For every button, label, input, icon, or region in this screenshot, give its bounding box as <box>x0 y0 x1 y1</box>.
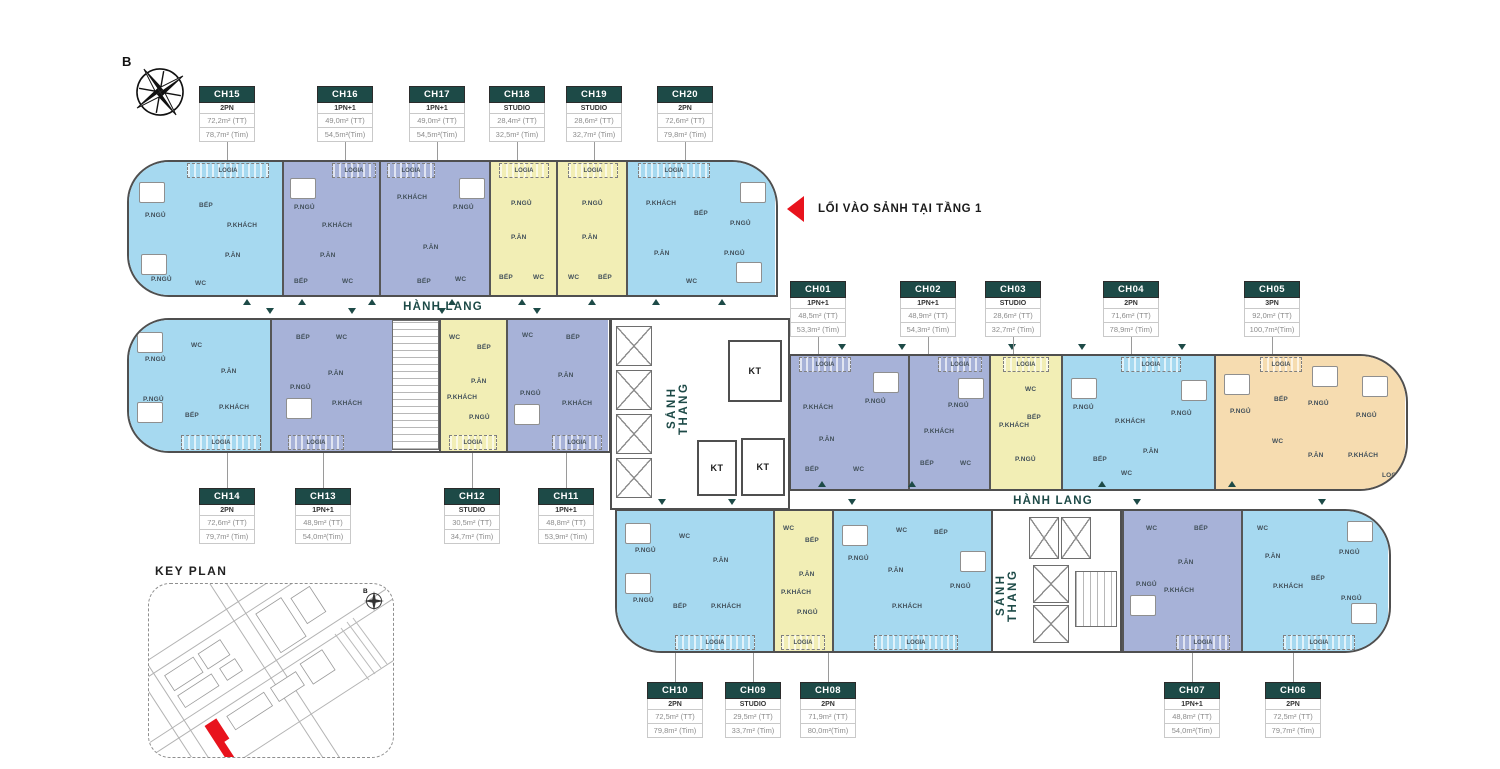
unit-id-badge: CH16 <box>317 86 373 103</box>
unit-area-tt: 72,6m² (TT) <box>657 114 713 128</box>
unit-area-tim: 54,3m² (Tim) <box>900 323 956 337</box>
bed-furniture <box>842 525 868 546</box>
room-label: P.NGỦ <box>145 356 166 363</box>
bed-furniture <box>139 182 165 203</box>
unit-callout-ch04: CH04 2PN 71,6m² (TT) 78,9m² (Tim) <box>1103 281 1159 337</box>
room-label: WC <box>195 280 206 287</box>
logia-strip: LOGIA <box>1121 357 1181 372</box>
room-label: P.NGỦ <box>145 212 166 219</box>
unit-CH05: LOGIA P.NGỦ BẾP P.NGỦ P.NGỦ WC P.ĂN P.KH… <box>1214 356 1405 489</box>
unit-area-tim: 54,0m²(Tim) <box>1164 724 1220 738</box>
logia-strip: LOGIA <box>332 163 376 178</box>
room-label: P.ĂN <box>225 252 241 259</box>
technical-room: KT <box>697 440 737 496</box>
room-label: P.ĂN <box>558 372 574 379</box>
unit-area-tim: 32,7m² (Tim) <box>566 128 622 142</box>
unit-area-tim: 53,3m² (Tim) <box>790 323 846 337</box>
entrance-marker-icon <box>438 308 446 314</box>
unit-id-badge: CH17 <box>409 86 465 103</box>
entrance-marker-icon <box>1078 344 1086 350</box>
room-label: P.NGỦ <box>797 609 818 616</box>
room-label: P.NGỦ <box>1073 404 1094 411</box>
room-label: WC <box>1025 386 1036 393</box>
unit-CH17: LOGIA P.NGỦ P.KHÁCH P.ĂN BẾP WC <box>379 162 489 295</box>
unit-area-tt: 48,8m² (TT) <box>538 516 594 530</box>
unit-id-badge: CH15 <box>199 86 255 103</box>
room-label: P.ĂN <box>471 378 487 385</box>
unit-CH18: LOGIA P.NGỦ P.ĂN BẾP WC <box>489 162 556 295</box>
room-label: P.NGỦ <box>453 204 474 211</box>
room-label: P.ĂN <box>1178 559 1194 566</box>
unit-type: 2PN <box>1265 699 1321 710</box>
room-label: BẾP <box>1027 414 1041 421</box>
unit-area-tt: 49,0m² (TT) <box>409 114 465 128</box>
unit-area-tim: 79,8m² (Tim) <box>647 724 703 738</box>
unit-id-badge: CH10 <box>647 682 703 699</box>
room-label: P.ĂN <box>582 234 598 241</box>
unit-id-badge: CH11 <box>538 488 594 505</box>
room-label: P.ĂN <box>888 567 904 574</box>
room-label: WC <box>1121 470 1132 477</box>
unit-id-badge: CH18 <box>489 86 545 103</box>
room-label: P.ĂN <box>221 368 237 375</box>
entrance-marker-icon <box>908 481 916 487</box>
unit-area-tt: 72,5m² (TT) <box>1265 710 1321 724</box>
logia-strip: LOGIA <box>387 163 435 178</box>
unit-callout-ch09: CH09 STUDIO 29,5m² (TT) 33,7m² (Tim) <box>725 682 781 738</box>
unit-type: 2PN <box>800 699 856 710</box>
room-label: P.NGỦ <box>290 384 311 391</box>
south-core: SẢNH THANG <box>991 511 1122 651</box>
room-label: BẾP <box>694 210 708 217</box>
room-label: BẾP <box>1274 396 1288 403</box>
room-label: P.KHÁCH <box>892 603 922 610</box>
unit-type: 2PN <box>199 103 255 114</box>
room-label: BẾP <box>920 460 934 467</box>
unit-callout-ch10: CH10 2PN 72,5m² (TT) 79,8m² (Tim) <box>647 682 703 738</box>
entrance-marker-icon <box>1318 499 1326 505</box>
bed-furniture <box>958 378 984 399</box>
unit-type: STUDIO <box>444 505 500 516</box>
entrance-marker-icon <box>266 308 274 314</box>
leader-line <box>753 653 754 682</box>
entrance-marker-icon <box>898 344 906 350</box>
bed-furniture <box>1071 378 1097 399</box>
unit-area-tim: 54,0m²(Tim) <box>295 530 351 544</box>
room-label: P.NGỦ <box>294 204 315 211</box>
unit-callout-ch01: CH01 1PN+1 48,5m² (TT) 53,3m² (Tim) <box>790 281 846 337</box>
entrance-marker-icon <box>448 299 456 305</box>
svg-text:B: B <box>122 54 131 69</box>
unit-type: 1PN+1 <box>295 505 351 516</box>
room-label: WC <box>1257 525 1268 532</box>
unit-type: 1PN+1 <box>317 103 373 114</box>
unit-area-tt: 72,2m² (TT) <box>199 114 255 128</box>
room-label: P.NGỦ <box>865 398 886 405</box>
room-label: BẾP <box>1194 525 1208 532</box>
unit-type: STUDIO <box>566 103 622 114</box>
entrance-marker-icon <box>1098 481 1106 487</box>
unit-area-tt: 28,4m² (TT) <box>489 114 545 128</box>
room-label: BẾP <box>1093 456 1107 463</box>
room-label: P.KHÁCH <box>332 400 362 407</box>
room-label: WC <box>1146 525 1157 532</box>
bed-furniture <box>141 254 167 275</box>
bed-furniture <box>1347 521 1373 542</box>
unit-CH07: LOGIA WC BẾP P.ĂN P.KHÁCH P.NGỦ <box>1122 511 1241 651</box>
svg-text:B: B <box>363 588 368 595</box>
unit-area-tim: 53,9m² (Tim) <box>538 530 594 544</box>
unit-area-tt: 72,6m² (TT) <box>199 516 255 530</box>
entrance-marker-icon <box>848 499 856 505</box>
room-label: P.NGỦ <box>1015 456 1036 463</box>
room-label: BẾP <box>673 603 687 610</box>
bed-furniture <box>625 573 651 594</box>
logia-strip: LOGIA <box>1283 635 1355 650</box>
room-label: P.ĂN <box>654 250 670 257</box>
entry-note: LỐI VÀO SẢNH TẠI TẦNG 1 <box>818 203 982 215</box>
unit-type: 1PN+1 <box>790 298 846 309</box>
bed-furniture <box>1224 374 1250 395</box>
room-label: WC <box>783 525 794 532</box>
room-label: P.NGỦ <box>633 597 654 604</box>
unit-area-tim: 34,7m² (Tim) <box>444 530 500 544</box>
logia-strip: LOGIA <box>187 163 269 178</box>
unit-area-tim: 79,7m² (Tim) <box>1265 724 1321 738</box>
room-label: P.KHÁCH <box>924 428 954 435</box>
bed-furniture <box>1181 380 1207 401</box>
room-label: P.ĂN <box>1143 448 1159 455</box>
unit-type: 1PN+1 <box>900 298 956 309</box>
entry-arrow-icon <box>787 196 804 222</box>
wing-east: LOGIA P.NGỦ P.KHÁCH P.ĂN BẾP WC LOGIA P.… <box>789 354 1408 491</box>
unit-area-tt: 48,5m² (TT) <box>790 309 846 323</box>
leader-line <box>472 453 473 488</box>
bed-furniture <box>286 398 312 419</box>
room-label: BẾP <box>805 466 819 473</box>
unit-type: 2PN <box>647 699 703 710</box>
unit-area-tim: 78,7m² (Tim) <box>199 128 255 142</box>
bed-furniture <box>1312 366 1338 387</box>
unit-area-tim: 32,5m² (Tim) <box>489 128 545 142</box>
unit-CH10: LOGIA P.NGỦ WC P.ĂN P.NGỦ BẾP P.KHÁCH <box>617 511 773 651</box>
room-label: BẾP <box>185 412 199 419</box>
unit-callout-ch13: CH13 1PN+1 48,9m² (TT) 54,0m²(Tim) <box>295 488 351 544</box>
room-label: P.NGỦ <box>848 555 869 562</box>
room-label: P.KHÁCH <box>397 194 427 201</box>
logia-strip: LOGIA <box>499 163 549 178</box>
unit-callout-ch05: CH05 3PN 92,0m² (TT) 100,7m²(Tim) <box>1244 281 1300 337</box>
bed-furniture <box>873 372 899 393</box>
unit-area-tim: 54,5m²(Tim) <box>317 128 373 142</box>
unit-CH02: LOGIA P.NGỦ P.KHÁCH BẾP WC <box>908 356 989 489</box>
room-label: BẾP <box>477 344 491 351</box>
room-label: BẾP <box>199 202 213 209</box>
room-label: P.NGỦ <box>1136 581 1157 588</box>
logia-strip: LOGIA <box>781 635 825 650</box>
room-label: WC <box>960 460 971 467</box>
entrance-marker-icon <box>533 308 541 314</box>
room-label: P.NGỦ <box>469 414 490 421</box>
unit-type: 2PN <box>1103 298 1159 309</box>
unit-id-badge: CH08 <box>800 682 856 699</box>
room-label: WC <box>568 274 579 281</box>
logia-strip: LOGIA <box>568 163 618 178</box>
room-label: WC <box>191 342 202 349</box>
room-label: P.KHÁCH <box>1164 587 1194 594</box>
room-label: WC <box>896 527 907 534</box>
unit-area-tt: 30,5m² (TT) <box>444 516 500 530</box>
bed-furniture <box>736 262 762 283</box>
room-label: WC <box>679 533 690 540</box>
room-label: WC <box>853 466 864 473</box>
unit-type: STUDIO <box>725 699 781 710</box>
unit-area-tt: 71,6m² (TT) <box>1103 309 1159 323</box>
unit-CH06: LOGIA WC P.NGỦ P.ĂN P.KHÁCH BẾP P.NGỦ <box>1241 511 1388 651</box>
room-label: P.ĂN <box>819 436 835 443</box>
leader-line <box>828 653 829 682</box>
room-label: BẾP <box>1311 575 1325 582</box>
bed-furniture <box>514 404 540 425</box>
logia-strip: LOGIA <box>1176 635 1230 650</box>
leader-line <box>675 653 676 682</box>
unit-type: 1PN+1 <box>538 505 594 516</box>
unit-callout-ch14: CH14 2PN 72,6m² (TT) 79,7m² (Tim) <box>199 488 255 544</box>
room-label: BẾP <box>934 529 948 536</box>
unit-callout-ch03: CH03 STUDIO 28,6m² (TT) 32,7m² (Tim) <box>985 281 1041 337</box>
bed-furniture <box>740 182 766 203</box>
unit-area-tim: 54,5m²(Tim) <box>409 128 465 142</box>
room-label: P.NGỦ <box>511 200 532 207</box>
logia-strip: LOGIA <box>1003 357 1049 372</box>
elevator-shaft <box>616 370 652 410</box>
unit-area-tt: 71,9m² (TT) <box>800 710 856 724</box>
room-label: P.KHÁCH <box>781 589 811 596</box>
stair-lobby-label: SẢNH THANG <box>995 545 1019 645</box>
elevator-shaft <box>616 458 652 498</box>
elevator-shaft <box>1033 565 1069 603</box>
unit-area-tim: 80,0m²(Tim) <box>800 724 856 738</box>
unit-area-tim: 79,8m² (Tim) <box>657 128 713 142</box>
bed-furniture <box>137 332 163 353</box>
unit-callout-ch08: CH08 2PN 71,9m² (TT) 80,0m²(Tim) <box>800 682 856 738</box>
room-label: P.NGỦ <box>1341 595 1362 602</box>
logia-strip: LOGIA <box>288 435 344 450</box>
bed-furniture <box>290 178 316 199</box>
unit-area-tim: 33,7m² (Tim) <box>725 724 781 738</box>
room-label: P.KHÁCH <box>1273 583 1303 590</box>
key-plan-site-icon: B <box>149 584 393 757</box>
elevator-shaft <box>1029 517 1059 559</box>
room-label: BẾP <box>296 334 310 341</box>
bed-furniture <box>137 402 163 423</box>
room-label: P.KHÁCH <box>322 222 352 229</box>
unit-area-tt: 28,6m² (TT) <box>566 114 622 128</box>
bed-furniture <box>459 178 485 199</box>
room-label: P.NGỦ <box>1171 410 1192 417</box>
bed-furniture <box>1351 603 1377 624</box>
room-label: P.KHÁCH <box>711 603 741 610</box>
unit-callout-ch11: CH11 1PN+1 48,8m² (TT) 53,9m² (Tim) <box>538 488 594 544</box>
room-label: BẾP <box>566 334 580 341</box>
room-label: P.NGỦ <box>1356 412 1377 419</box>
room-label: P.KHÁCH <box>562 400 592 407</box>
entrance-marker-icon <box>368 299 376 305</box>
elevator-shaft <box>616 326 652 366</box>
room-label: WC <box>449 334 460 341</box>
room-label: P.NGỦ <box>1308 400 1329 407</box>
unit-area-tt: 29,5m² (TT) <box>725 710 781 724</box>
logia-strip: LOGIA <box>449 435 497 450</box>
logia-strip: LOGIA <box>1260 357 1302 372</box>
unit-CH03: LOGIA WC BẾP P.KHÁCH P.NGỦ <box>989 356 1061 489</box>
unit-callout-ch18: CH18 STUDIO 28,4m² (TT) 32,5m² (Tim) <box>489 86 545 142</box>
unit-area-tt: 72,5m² (TT) <box>647 710 703 724</box>
unit-area-tim: 100,7m²(Tim) <box>1244 323 1300 337</box>
room-label: WC <box>533 274 544 281</box>
unit-area-tt: 28,6m² (TT) <box>985 309 1041 323</box>
unit-id-badge: CH13 <box>295 488 351 505</box>
unit-type: 2PN <box>657 103 713 114</box>
room-label: P.KHÁCH <box>227 222 257 229</box>
unit-CH20: LOGIA P.KHÁCH BẾP P.NGỦ P.ĂN P.NGỦ WC <box>626 162 775 295</box>
leader-line <box>566 453 567 488</box>
wing-west: LOGIA P.NGỦ WC P.ĂN P.NGỦ BẾP P.KHÁCH LO… <box>127 318 611 453</box>
unit-id-badge: CH09 <box>725 682 781 699</box>
unit-type: 1PN+1 <box>1164 699 1220 710</box>
room-label: P.KHÁCH <box>999 422 1029 429</box>
entrance-marker-icon <box>838 344 846 350</box>
wing-south: LOGIA P.NGỦ WC P.ĂN P.NGỦ BẾP P.KHÁCH LO… <box>615 509 1391 653</box>
unit-callout-ch19: CH19 STUDIO 28,6m² (TT) 32,7m² (Tim) <box>566 86 622 142</box>
unit-type: 1PN+1 <box>409 103 465 114</box>
unit-id-badge: CH14 <box>199 488 255 505</box>
room-label: P.KHÁCH <box>219 404 249 411</box>
entrance-marker-icon <box>652 299 660 305</box>
unit-callout-ch12: CH12 STUDIO 30,5m² (TT) 34,7m² (Tim) <box>444 488 500 544</box>
logia-strip: LOGIA <box>552 435 602 450</box>
unit-callout-ch15: CH15 2PN 72,2m² (TT) 78,7m² (Tim) <box>199 86 255 142</box>
room-label: LOGIA <box>1382 472 1404 479</box>
room-label: P.ĂN <box>799 571 815 578</box>
logia-strip: LOGIA <box>638 163 710 178</box>
room-label: P.NGỦ <box>143 396 164 403</box>
logia-strip: LOGIA <box>675 635 755 650</box>
unit-CH13: LOGIA BẾP WC P.ĂN P.KHÁCH P.NGỦ <box>270 320 392 451</box>
corridor-label: HÀNH LANG <box>1008 495 1098 507</box>
unit-CH15: LOGIA P.NGỦ BẾP P.KHÁCH P.ĂN P.NGỦ WC <box>129 162 282 295</box>
unit-id-badge: CH19 <box>566 86 622 103</box>
unit-callout-ch17: CH17 1PN+1 49,0m² (TT) 54,5m²(Tim) <box>409 86 465 142</box>
room-label: BẾP <box>499 274 513 281</box>
room-label: P.KHÁCH <box>646 200 676 207</box>
logia-strip: LOGIA <box>181 435 261 450</box>
leader-line <box>227 453 228 488</box>
entrance-marker-icon <box>658 499 666 505</box>
technical-room: KT <box>728 340 782 402</box>
unit-id-badge: CH01 <box>790 281 846 298</box>
entrance-marker-icon <box>1133 499 1141 505</box>
unit-CH08: LOGIA P.NGỦ WC BẾP P.NGỦ P.ĂN P.KHÁCH <box>832 511 991 651</box>
unit-id-badge: CH02 <box>900 281 956 298</box>
elevator-shaft <box>1033 605 1069 643</box>
stairwell <box>392 320 439 450</box>
unit-callout-ch02: CH02 1PN+1 48,9m² (TT) 54,3m² (Tim) <box>900 281 956 337</box>
unit-id-badge: CH20 <box>657 86 713 103</box>
compass-icon: B <box>116 48 196 128</box>
room-label: P.NGỦ <box>730 220 751 227</box>
key-plan-title: KEY PLAN <box>155 564 227 578</box>
room-label: WC <box>455 276 466 283</box>
room-label: P.NGỦ <box>950 583 971 590</box>
logia-strip: LOGIA <box>874 635 958 650</box>
room-label: WC <box>522 332 533 339</box>
unit-id-badge: CH03 <box>985 281 1041 298</box>
unit-CH19: LOGIA P.NGỦ P.ĂN BẾP WC <box>556 162 626 295</box>
entrance-marker-icon <box>243 299 251 305</box>
unit-callout-ch20: CH20 2PN 72,6m² (TT) 79,8m² (Tim) <box>657 86 713 142</box>
room-label: BẾP <box>417 278 431 285</box>
room-label: BẾP <box>598 274 612 281</box>
logia-strip: LOGIA <box>799 357 851 372</box>
unit-id-badge: CH06 <box>1265 682 1321 699</box>
room-label: P.NGỦ <box>1339 549 1360 556</box>
unit-CH11: LOGIA WC BẾP P.ĂN P.KHÁCH P.NGỦ <box>506 320 608 451</box>
room-label: P.ĂN <box>1308 452 1324 459</box>
entrance-marker-icon <box>718 299 726 305</box>
room-label: WC <box>1272 438 1283 445</box>
unit-id-badge: CH12 <box>444 488 500 505</box>
room-label: WC <box>336 334 347 341</box>
entrance-marker-icon <box>298 299 306 305</box>
unit-area-tt: 49,0m² (TT) <box>317 114 373 128</box>
unit-area-tt: 48,9m² (TT) <box>900 309 956 323</box>
floor-plan-canvas: B LOGIA P.NGỦ BẾP P.KHÁCH P.ĂN P.NGỦ WC <box>0 0 1500 769</box>
room-label: BẾP <box>805 537 819 544</box>
room-label: P.ĂN <box>423 244 439 251</box>
entrance-marker-icon <box>728 499 736 505</box>
unit-type: STUDIO <box>985 298 1041 309</box>
unit-area-tim: 78,9m² (Tim) <box>1103 323 1159 337</box>
room-label: P.ĂN <box>1265 553 1281 560</box>
unit-area-tt: 48,8m² (TT) <box>1164 710 1220 724</box>
unit-CH14: LOGIA P.NGỦ WC P.ĂN P.NGỦ BẾP P.KHÁCH <box>129 320 270 451</box>
technical-room: KT <box>741 438 785 496</box>
entrance-marker-icon <box>518 299 526 305</box>
bed-furniture <box>1130 595 1156 616</box>
unit-id-badge: CH05 <box>1244 281 1300 298</box>
room-label: P.ĂN <box>320 252 336 259</box>
elevator-shaft <box>616 414 652 454</box>
room-label: P.NGỦ <box>1230 408 1251 415</box>
room-label: P.NGỦ <box>582 200 603 207</box>
logia-strip: LOGIA <box>938 357 982 372</box>
unit-area-tt: 92,0m² (TT) <box>1244 309 1300 323</box>
room-label: WC <box>686 278 697 285</box>
room-label: P.ĂN <box>511 234 527 241</box>
room-label: P.NGỦ <box>635 547 656 554</box>
unit-type: STUDIO <box>489 103 545 114</box>
entrance-marker-icon <box>1008 344 1016 350</box>
unit-id-badge: CH07 <box>1164 682 1220 699</box>
key-plan-map: B <box>148 583 394 758</box>
bed-furniture <box>960 551 986 572</box>
stairwell <box>1075 571 1117 627</box>
room-label: WC <box>342 278 353 285</box>
unit-CH01: LOGIA P.NGỦ P.KHÁCH P.ĂN BẾP WC <box>791 356 908 489</box>
unit-callout-ch06: CH06 2PN 72,5m² (TT) 79,7m² (Tim) <box>1265 682 1321 738</box>
room-label: P.NGỦ <box>520 390 541 397</box>
